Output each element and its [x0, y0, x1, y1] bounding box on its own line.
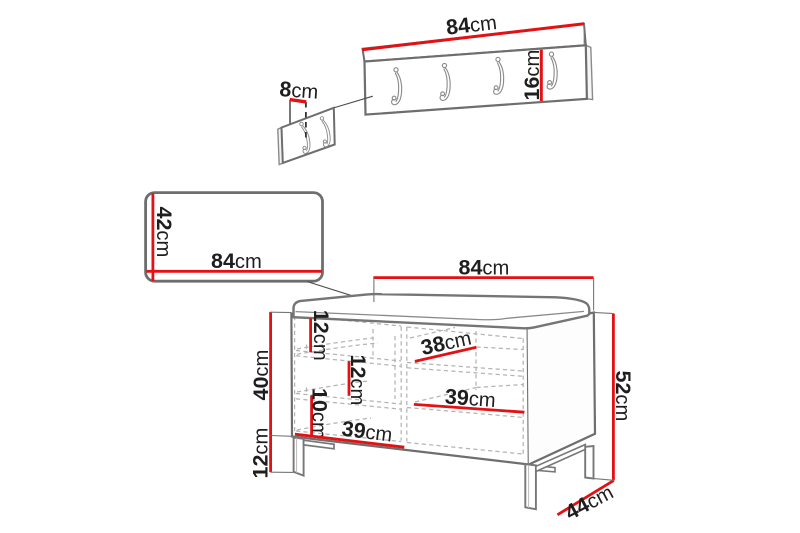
svg-text:42cm: 42cm — [152, 207, 176, 258]
svg-text:40cm: 40cm — [249, 350, 273, 401]
svg-text:12cm: 12cm — [249, 428, 273, 479]
svg-text:44cm: 44cm — [561, 480, 617, 525]
svg-text:84cm: 84cm — [459, 256, 510, 280]
svg-text:12cm: 12cm — [346, 355, 370, 406]
svg-text:84cm: 84cm — [211, 249, 262, 273]
svg-text:10cm: 10cm — [308, 388, 332, 439]
svg-text:16cm: 16cm — [520, 50, 544, 101]
svg-text:8cm: 8cm — [279, 77, 319, 104]
svg-text:39cm: 39cm — [444, 385, 496, 412]
svg-text:12cm: 12cm — [309, 310, 333, 361]
svg-text:52cm: 52cm — [611, 371, 635, 422]
